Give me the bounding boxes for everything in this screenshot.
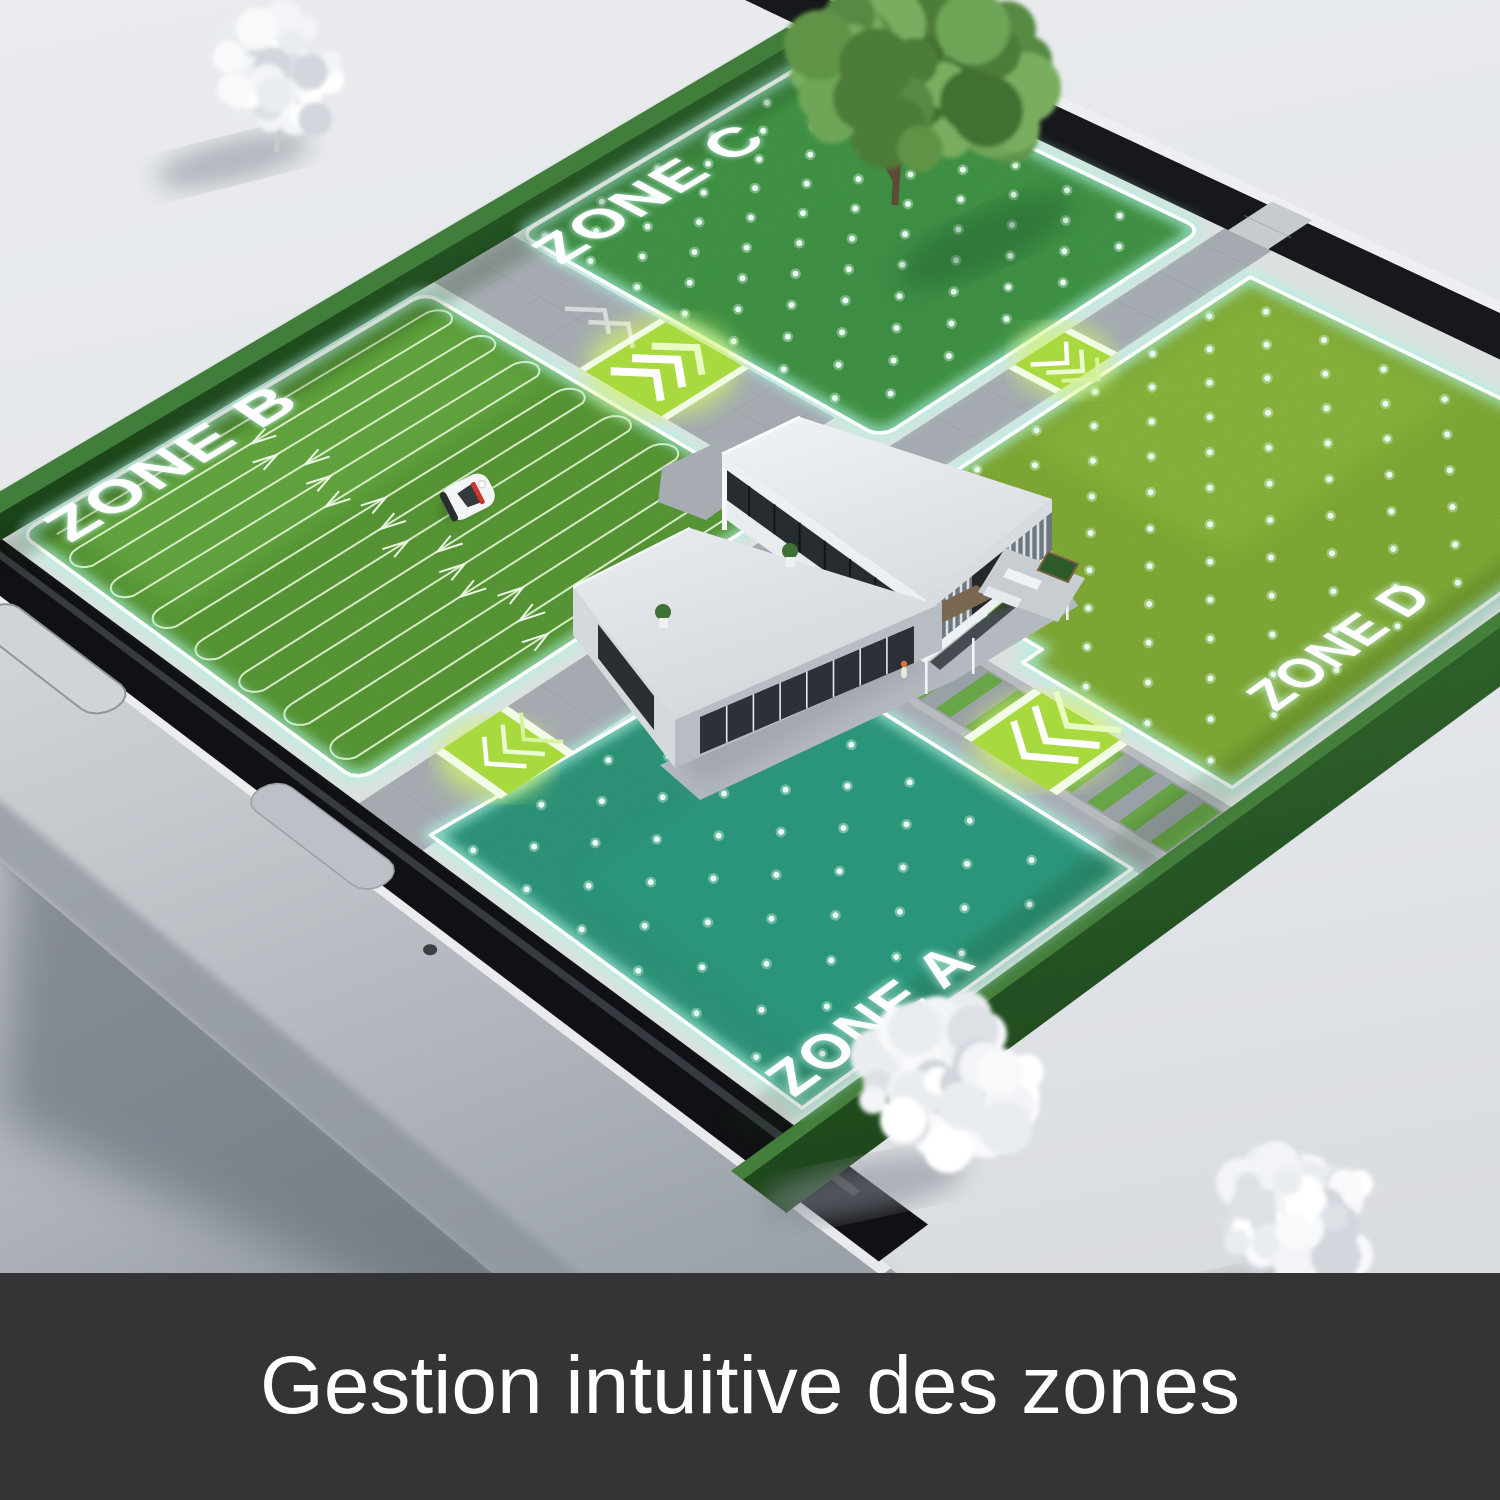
svg-text:Gestion intuitive des zones: Gestion intuitive des zones [260,1340,1240,1431]
